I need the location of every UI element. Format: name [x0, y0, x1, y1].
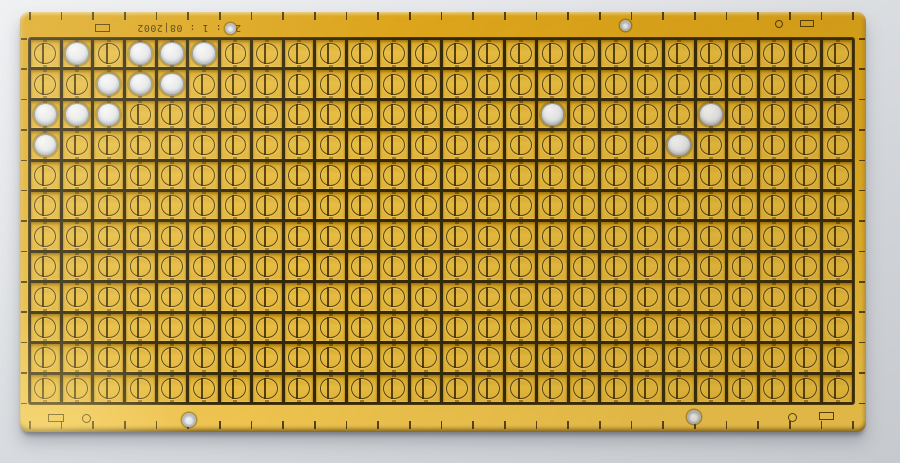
pad-bar [391, 104, 393, 125]
pad-cell-unplated [94, 101, 123, 128]
pad-bar [201, 165, 203, 186]
pad-ring [288, 135, 310, 156]
pad-cell [601, 375, 630, 402]
pad-ring [130, 195, 152, 216]
pad-ring [161, 378, 183, 399]
tick [694, 12, 696, 20]
pad-cell [601, 131, 630, 158]
pad-ring [573, 165, 595, 186]
pad-cell [506, 70, 535, 97]
pad-cell [94, 40, 123, 67]
pad-cell [665, 192, 694, 219]
pad-bar [454, 317, 456, 338]
pad-bar [518, 104, 520, 125]
pad-cell [316, 283, 345, 310]
pad-ring [256, 347, 278, 368]
pad-ring [827, 347, 849, 368]
pad-bar [137, 256, 139, 277]
pad-bar [264, 347, 266, 368]
pad-bar [264, 256, 266, 277]
pad-ring [542, 195, 564, 216]
pad-cell [792, 253, 821, 280]
unplated-disc [667, 134, 691, 157]
pad-cell [570, 192, 599, 219]
pad-cell [126, 131, 155, 158]
tick [282, 12, 284, 20]
pad-bar [422, 256, 424, 277]
pad-bar [422, 135, 424, 156]
pad-bar [106, 226, 108, 247]
pad-bar [137, 165, 139, 186]
pad-cell [823, 253, 852, 280]
pad-ring [34, 347, 56, 368]
pad-cell [31, 70, 60, 97]
pad-bar [581, 135, 583, 156]
pad-cell [443, 314, 472, 341]
pad-bar [486, 43, 488, 64]
pad-cell [411, 40, 440, 67]
pad-cell [189, 375, 218, 402]
tick [859, 190, 865, 192]
pad-cell [823, 375, 852, 402]
tick [92, 12, 94, 20]
pad-cell-unplated [158, 40, 187, 67]
pad-bar [137, 104, 139, 125]
pad-ring [225, 256, 247, 277]
pad-cell-unplated [665, 131, 694, 158]
pad-bar [581, 104, 583, 125]
pad-ring [446, 256, 468, 277]
pad-ring [34, 256, 56, 277]
unplated-disc [97, 73, 121, 96]
pad-bar [264, 74, 266, 95]
tick [124, 421, 126, 429]
pad-bar [137, 347, 139, 368]
pad-bar [518, 43, 520, 64]
pad-bar [422, 317, 424, 338]
tick [859, 38, 865, 40]
pad-ring [288, 43, 310, 64]
pad-ring [193, 287, 215, 308]
pad-ring [478, 104, 500, 125]
pad-bar [232, 226, 234, 247]
tick [29, 421, 31, 429]
pad-cell [665, 70, 694, 97]
pad-ring [605, 347, 627, 368]
pad-bar [771, 347, 773, 368]
pad-ring [446, 104, 468, 125]
pad-bar [422, 195, 424, 216]
pad-cell [443, 40, 472, 67]
pad-ring [415, 347, 437, 368]
pad-bar [613, 287, 615, 308]
pad-bar [42, 43, 44, 64]
tick [859, 220, 865, 222]
pad-cell [316, 70, 345, 97]
pad-bar [518, 135, 520, 156]
pad-bar [676, 347, 678, 368]
pad-cell [475, 131, 504, 158]
pad-ring [700, 347, 722, 368]
pad-ring [34, 317, 56, 338]
pad-ring [510, 165, 532, 186]
pad-bar [613, 135, 615, 156]
pad-cell [348, 70, 377, 97]
pad-cell [633, 192, 662, 219]
pad-ring [827, 135, 849, 156]
pad-cell [538, 222, 567, 249]
pad-bar [486, 135, 488, 156]
pad-ring [827, 287, 849, 308]
pad-bar [137, 195, 139, 216]
pad-cell [348, 222, 377, 249]
pad-bar [771, 135, 773, 156]
pad-bar [201, 104, 203, 125]
pad-ring [288, 195, 310, 216]
pad-ring [542, 347, 564, 368]
pad-ring [415, 43, 437, 64]
pad-ring [34, 195, 56, 216]
pad-cell [792, 222, 821, 249]
pad-ring [225, 104, 247, 125]
pad-cell [221, 40, 250, 67]
pad-ring [351, 347, 373, 368]
pad-cell [760, 253, 789, 280]
pad-cell [792, 192, 821, 219]
pad-cell [823, 314, 852, 341]
pad-cell [316, 101, 345, 128]
pad-cell [189, 222, 218, 249]
pad-bar [518, 317, 520, 338]
pad-bar [708, 378, 710, 399]
pad-bar [486, 256, 488, 277]
pad-bar [169, 287, 171, 308]
pad-ring [34, 43, 56, 64]
pad-ring [573, 104, 595, 125]
pad-cell [348, 162, 377, 189]
pad-cell [221, 222, 250, 249]
pad-cell [633, 344, 662, 371]
pad-ring [605, 165, 627, 186]
pad-bar [613, 378, 615, 399]
pad-cell [728, 344, 757, 371]
pad-cell [506, 40, 535, 67]
pad-ring [732, 165, 754, 186]
pad-bar [803, 104, 805, 125]
pad-cell [570, 314, 599, 341]
pad-bar [739, 347, 741, 368]
pad-ring [351, 317, 373, 338]
pad-bar [296, 347, 298, 368]
pad-cell [316, 162, 345, 189]
pad-cell [506, 344, 535, 371]
pad-ring [288, 256, 310, 277]
pad-cell [475, 283, 504, 310]
pad-bar [422, 347, 424, 368]
pad-bar [391, 165, 393, 186]
pad-bar [644, 287, 646, 308]
pad-ring [383, 347, 405, 368]
pad-ring [827, 195, 849, 216]
pad-ring [446, 195, 468, 216]
pad-ring [98, 195, 120, 216]
pad-cell [443, 162, 472, 189]
pad-ring [66, 347, 88, 368]
pad-cell [538, 162, 567, 189]
pad-bar [834, 256, 836, 277]
pad-bar [106, 195, 108, 216]
pad-ring [827, 256, 849, 277]
pad-bar [137, 287, 139, 308]
pad-ring [668, 104, 690, 125]
pad-cell [823, 70, 852, 97]
unplated-disc [65, 42, 89, 65]
tick [377, 421, 379, 429]
tick [726, 12, 728, 20]
pad-cell [823, 131, 852, 158]
pad-ring [827, 226, 849, 247]
pad-cell [221, 344, 250, 371]
pad-ring [320, 226, 342, 247]
ruler-ticks-bottom [29, 420, 854, 429]
pad-bar [232, 347, 234, 368]
pad-cell [126, 253, 155, 280]
pad-cell [221, 131, 250, 158]
pad-ring [225, 43, 247, 64]
pad-cell [348, 314, 377, 341]
pad-cell [189, 253, 218, 280]
pad-bar [739, 74, 741, 95]
pad-bar [708, 287, 710, 308]
pad-cell [94, 253, 123, 280]
pad-cell [665, 344, 694, 371]
tick [282, 421, 284, 429]
pad-ring [605, 74, 627, 95]
pad-cell [570, 40, 599, 67]
tick [859, 68, 865, 70]
pad-ring [66, 226, 88, 247]
pad-bar [42, 256, 44, 277]
pad-ring [130, 226, 152, 247]
pad-bar [803, 43, 805, 64]
pad-ring [446, 226, 468, 247]
pad-ring [98, 317, 120, 338]
pad-cell [475, 375, 504, 402]
pad-cell [94, 375, 123, 402]
pad-ring [256, 226, 278, 247]
tick [599, 12, 601, 20]
pad-cell [411, 222, 440, 249]
pad-cell [380, 314, 409, 341]
pad-ring [415, 165, 437, 186]
pad-ring [446, 287, 468, 308]
tick [567, 12, 569, 20]
pad-cell [31, 162, 60, 189]
pad-bar [486, 287, 488, 308]
pad-bar [549, 135, 551, 156]
pad-ring [193, 226, 215, 247]
pad-ring [605, 135, 627, 156]
tick [92, 421, 94, 429]
pad-ring [573, 347, 595, 368]
tick [859, 281, 865, 283]
pad-bar [391, 43, 393, 64]
pad-ring [351, 378, 373, 399]
pad-ring [225, 317, 247, 338]
pad-ring [700, 135, 722, 156]
pad-ring [98, 287, 120, 308]
fiducial-circle-bottom-left [82, 414, 91, 423]
pad-bar [834, 74, 836, 95]
pad-bar [771, 226, 773, 247]
pad-bar [169, 165, 171, 186]
pad-bar [201, 135, 203, 156]
tick [61, 12, 63, 20]
pad-bar [327, 165, 329, 186]
pad-ring [130, 347, 152, 368]
pad-cell [475, 192, 504, 219]
pcb-panel: 22 : 1 : 08|2002 [20, 12, 866, 432]
pad-ring [700, 317, 722, 338]
pad-bar [739, 195, 741, 216]
pad-cell [316, 375, 345, 402]
pad-cell [221, 162, 250, 189]
pad-ring [795, 287, 817, 308]
pad-bar [74, 195, 76, 216]
pad-cell [126, 192, 155, 219]
pad-ring [573, 43, 595, 64]
pad-cell [348, 40, 377, 67]
pad-bar [803, 165, 805, 186]
pad-ring [763, 378, 785, 399]
pad-bar [771, 104, 773, 125]
pad-cell [697, 375, 726, 402]
pad-cell [760, 192, 789, 219]
pad-cell [189, 131, 218, 158]
tick [441, 421, 443, 429]
pad-bar [644, 165, 646, 186]
pad-ring [66, 195, 88, 216]
pad-bar [169, 135, 171, 156]
pad-cell [63, 131, 92, 158]
tick [662, 12, 664, 20]
pad-bar [549, 43, 551, 64]
pad-bar [359, 256, 361, 277]
pad-cell [31, 283, 60, 310]
pad-cell [760, 40, 789, 67]
pad-bar [74, 317, 76, 338]
pad-bar [74, 74, 76, 95]
pad-bar [232, 287, 234, 308]
pad-ring [193, 195, 215, 216]
pad-cell [94, 314, 123, 341]
pad-cell [31, 192, 60, 219]
pad-bar [518, 347, 520, 368]
pad-bar [422, 287, 424, 308]
pad-cell [570, 70, 599, 97]
pad-bar [739, 256, 741, 277]
pad-cell [126, 314, 155, 341]
pad-cell [633, 253, 662, 280]
pad-cell [126, 222, 155, 249]
pad-ring [415, 287, 437, 308]
pad-cell [221, 101, 250, 128]
pad-cell [728, 375, 757, 402]
pad-bar [391, 256, 393, 277]
pad-bar [676, 287, 678, 308]
pad-ring [795, 256, 817, 277]
pad-ring [668, 378, 690, 399]
pad-bar [771, 43, 773, 64]
pad-bar [739, 165, 741, 186]
pad-ring [763, 74, 785, 95]
pad-cell [792, 283, 821, 310]
pad-ring [542, 165, 564, 186]
tick [852, 421, 854, 429]
pad-bar [169, 226, 171, 247]
pad-bar [708, 74, 710, 95]
pad-bar [327, 317, 329, 338]
pad-cell [411, 283, 440, 310]
pad-cell [570, 344, 599, 371]
tooling-hole-top-mid [620, 20, 631, 31]
pad-bar [422, 43, 424, 64]
pad-cell [506, 314, 535, 341]
pad-cell [697, 162, 726, 189]
pad-bar [708, 165, 710, 186]
pad-cell [538, 314, 567, 341]
pad-bar [74, 256, 76, 277]
unplated-disc [699, 103, 723, 126]
pad-bar [676, 104, 678, 125]
pad-ring [510, 347, 532, 368]
pad-cell [253, 101, 282, 128]
pad-cell [728, 314, 757, 341]
pad-bar [232, 165, 234, 186]
pad-ring [573, 317, 595, 338]
unplated-disc [160, 73, 184, 96]
pad-bar [264, 135, 266, 156]
pad-ring [795, 43, 817, 64]
pad-bar [549, 195, 551, 216]
pad-bar [486, 347, 488, 368]
pad-ring [542, 43, 564, 64]
pad-bar [232, 104, 234, 125]
pad-bar [834, 378, 836, 399]
pad-bar [803, 226, 805, 247]
pad-cell [411, 192, 440, 219]
pad-bar [644, 256, 646, 277]
pad-cell [760, 344, 789, 371]
pad-bar [454, 195, 456, 216]
tick [21, 129, 27, 131]
pad-cell [475, 344, 504, 371]
tick [251, 421, 253, 429]
pad-bar [327, 347, 329, 368]
pad-ring [383, 226, 405, 247]
pad-bar [106, 43, 108, 64]
pad-bar [581, 256, 583, 277]
pad-ring [98, 226, 120, 247]
pad-ring [763, 226, 785, 247]
unplated-disc [65, 103, 89, 126]
pad-bar [359, 317, 361, 338]
pad-ring [161, 226, 183, 247]
pad-bar [391, 195, 393, 216]
pad-bar [708, 317, 710, 338]
pad-cell-unplated [126, 40, 155, 67]
pad-cell [63, 253, 92, 280]
